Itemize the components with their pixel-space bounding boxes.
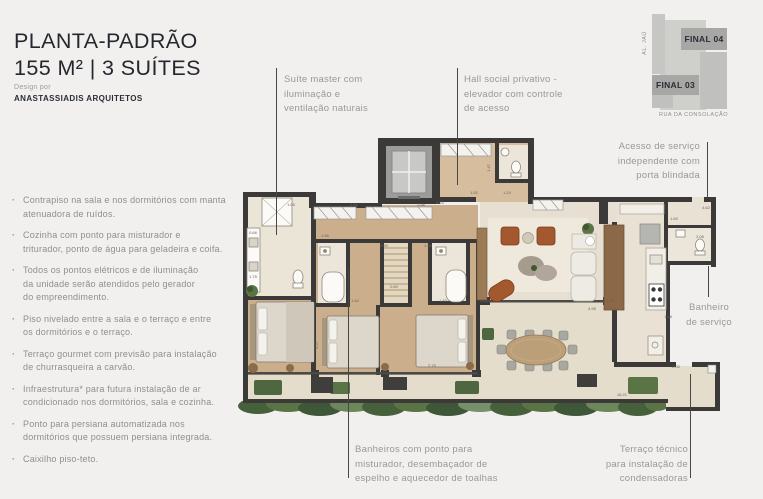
callout-banheiros: Banheiros com ponto para misturador, des… bbox=[355, 443, 525, 487]
site-minimap: FINAL 04 FINAL 03 AL. JAÚ RUA DA CONSOLA… bbox=[636, 8, 763, 123]
svg-text:1.47: 1.47 bbox=[486, 163, 491, 172]
svg-text:1.40: 1.40 bbox=[351, 298, 360, 303]
brochure-page: { "header": { "title_line1": "PLANTA-PAD… bbox=[0, 0, 763, 499]
svg-text:2.06: 2.06 bbox=[696, 234, 705, 239]
svg-text:1.56: 1.56 bbox=[321, 233, 330, 238]
svg-text:2.36: 2.36 bbox=[606, 298, 615, 303]
svg-text:1.05: 1.05 bbox=[287, 202, 296, 207]
minimap-block bbox=[700, 52, 727, 109]
callout-banheiro-servico: Banheiro de serviço bbox=[662, 301, 756, 330]
svg-text:1.50: 1.50 bbox=[424, 243, 433, 248]
leader-terraco-tecnico bbox=[690, 374, 691, 478]
svg-text:6.53: 6.53 bbox=[436, 200, 445, 205]
callout-acesso-servico: Acesso de serviço independente com porta… bbox=[588, 140, 700, 184]
leader-banheiros bbox=[348, 268, 349, 478]
svg-text:1.52: 1.52 bbox=[470, 190, 479, 195]
svg-text:1.24: 1.24 bbox=[503, 190, 512, 195]
callout-suite-master: Suíte master com iluminação e ventilação… bbox=[284, 73, 384, 117]
leader-suite-master bbox=[276, 68, 277, 235]
svg-text:2.00: 2.00 bbox=[672, 364, 681, 369]
dining-set bbox=[497, 330, 577, 371]
callout-terraco-tecnico: Terraço técnico para instalação de conde… bbox=[578, 443, 688, 487]
leader-banheiro-servico bbox=[708, 266, 709, 297]
svg-text:16.21: 16.21 bbox=[617, 392, 628, 397]
leader-acesso-servico bbox=[707, 142, 708, 198]
minimap-final-03: FINAL 03 bbox=[652, 75, 699, 95]
svg-text:2.56: 2.56 bbox=[350, 202, 359, 207]
svg-text:2.56: 2.56 bbox=[417, 202, 426, 207]
svg-text:0.66: 0.66 bbox=[249, 230, 258, 235]
svg-text:5.27: 5.27 bbox=[314, 340, 319, 349]
minimap-block bbox=[652, 14, 665, 74]
svg-text:4.62: 4.62 bbox=[702, 205, 711, 210]
svg-text:1.60: 1.60 bbox=[670, 216, 679, 221]
svg-text:1.75: 1.75 bbox=[249, 274, 258, 279]
callout-hall-social: Hall social privativo - elevador com con… bbox=[464, 73, 584, 117]
leader-hall-social bbox=[457, 68, 458, 185]
minimap-final-04: FINAL 04 bbox=[681, 28, 727, 50]
street-rua-consolacao: RUA DA CONSOLAÇÃO bbox=[636, 112, 751, 118]
svg-text:2.75: 2.75 bbox=[428, 363, 437, 368]
svg-text:4.95: 4.95 bbox=[588, 306, 597, 311]
svg-text:0.90: 0.90 bbox=[380, 243, 389, 248]
svg-text:1.40: 1.40 bbox=[439, 298, 448, 303]
minimap-block bbox=[652, 95, 673, 108]
elevator bbox=[378, 138, 440, 204]
svg-text:0.80: 0.80 bbox=[390, 284, 399, 289]
street-al-jau: AL. JAÚ bbox=[642, 23, 648, 63]
